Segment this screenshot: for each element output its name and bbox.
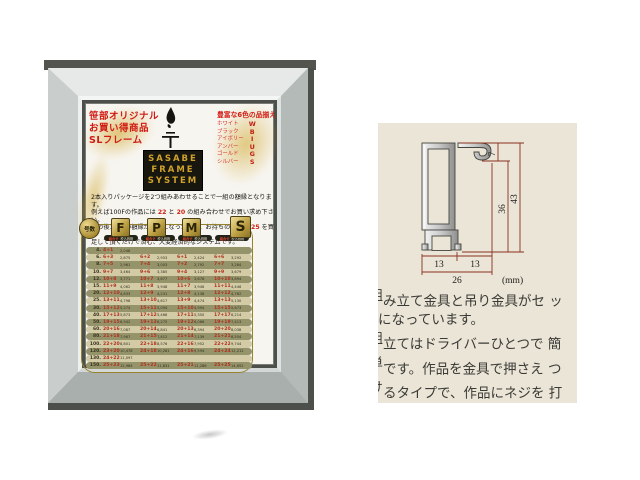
cell-price: 4,617 [157,299,167,303]
cell-combo: 24+18 [140,349,157,354]
table-cell: 21+187,967 [103,334,140,339]
cell-combo: 13+11 [103,298,120,303]
cell-price: 6,275 [157,320,167,324]
cell-price: 3,292 [231,256,241,260]
cell-combo: 9+4 [177,270,194,275]
color-name: ホワイト [217,121,244,129]
table-cell: 15+125,274 [103,306,140,311]
cell-price: 3,946 [194,285,204,289]
cell-combo: 10+7 [140,277,157,282]
cell-price: 11,831 [157,364,170,368]
cell-price: 5,673 [231,306,241,310]
table-cell: 15+155,673 [214,306,251,311]
dim-43: 43 [510,194,520,204]
row-size: 100. [86,342,103,347]
table-cell: 12+84,138 [177,291,214,296]
table-row: 10.9+73,4649+63,3859+43,1279+93,679 [86,269,252,276]
description-line-text: るタイプで、作品にネジを 打 [383,386,562,402]
table-cell: 11+83,948 [140,284,177,289]
dim-unit: (mm) [502,275,523,286]
color-code: S [249,159,256,167]
cell-price: 8,576 [157,342,167,346]
profile-cross-section-diagram: 7 36 43 13 13 26 (mm) [378,123,577,289]
cell-combo: 20+14 [140,327,157,332]
table-row: 150.25+2312,98425+2211,83125+2111,28625+… [86,362,252,369]
table-cell: 11+73,946 [177,284,214,289]
table-cell: 19+126,066 [177,320,214,325]
cell-price: 4,798 [120,299,130,303]
aluminum-frame: 笹部オリジナルお買い得商品SLフレーム SASABE FRAME SYSTEM … [48,68,308,403]
table-cell: 7+43,003 [140,262,177,267]
table-cell: 17+176,214 [214,313,251,318]
cell-price: 4,994 [194,306,204,310]
table-cell: 15+115,094 [140,306,177,311]
cell-price: 10,281 [157,349,170,353]
intro-segment: 20 [177,209,186,216]
cell-combo: 22+20 [103,342,120,347]
cell-price: 2,424 [194,256,204,260]
cell-combo: 21+15 [140,334,157,339]
description-line: 組立てはドライバーひとつで 簡 [378,330,577,354]
table-cell: 7+73,284 [214,262,251,267]
cell-combo: 20+13 [177,327,194,332]
fpms-box-f: F [111,218,130,237]
cell-price: 2,875 [120,256,130,260]
table-cell: 13+94,474 [177,298,214,303]
table-cell: 10+83,771 [103,277,140,282]
frame-shadow [192,428,229,442]
table-cell: 15+104,994 [177,306,214,311]
cell-price: 6,394 [194,328,204,332]
cell-combo: 7+7 [214,262,231,267]
color-name: ゴールド [217,151,244,159]
cell-combo: 24+22 [103,356,120,361]
cell-combo: 15+12 [103,306,120,311]
intro-segment: と [166,209,176,216]
cell-combo: 12+12 [214,291,231,296]
cell-combo: 20+16 [103,327,120,332]
cell-price: 7,967 [120,335,130,339]
table-cell: 13+135,130 [214,298,251,303]
table-cell: 7+52,961 [103,262,140,267]
color-lineup: 豊富な6色の品揃え ホワイトブラックアイボリーアンバーゴールドシルバー WBIU… [217,109,281,167]
cell-price: 2,953 [157,256,167,260]
cell-combo: 12+8 [177,291,194,296]
dim-13-left: 13 [434,260,444,270]
cell-combo: 11+8 [140,284,157,289]
cell-combo: 22+22 [214,342,231,347]
table-cell: 24+2211,097 [103,356,140,361]
cell-price: 4,633 [120,292,130,296]
table-cell: 20+136,394 [177,327,214,332]
cell-price: 5,873 [120,313,130,317]
table-row: 40.17+135,87317+125,46817+115,35017+176,… [86,312,252,319]
cell-price: 3,284 [231,263,241,267]
table-cell: 19+136,275 [140,320,177,325]
cell-price: 8,801 [120,342,130,346]
cell-price: 8,554 [231,335,241,339]
cell-combo: 25+23 [103,363,120,368]
cell-combo: 12+10 [103,291,120,296]
cell-combo: 9+6 [140,270,157,275]
cell-combo: 12+9 [140,291,157,296]
cell-combo: 10+8 [103,277,120,282]
cell-price: 6,214 [231,313,241,317]
cell-price: 3,948 [157,285,167,289]
cell-price: 3,127 [194,270,204,274]
description-line: けるタイプで、作品にネジを 打 [378,379,577,403]
row-size: 50. [86,320,103,325]
row-size: 60. [86,327,103,332]
color-name: シルバー [217,159,244,167]
table-cell: 12+104,633 [103,291,140,296]
cell-price: 11,286 [194,364,207,368]
framed-poster-photo: 笹部オリジナルお買い得商品SLフレーム SASABE FRAME SYSTEM … [46,60,314,410]
cell-combo: 7+2 [177,262,194,267]
description-line: 組み立て金具と吊り金具がセ ッ [378,287,577,311]
promo-line: SLフレーム [89,135,159,147]
cell-combo: 13+10 [140,298,157,303]
cell-price: 4,062 [120,285,130,289]
table-row: 6.6+32,8756+22,9536+12,4246+63,292 [86,254,252,261]
table-cell: 22+167,952 [177,342,214,347]
table-cell: 20+146,841 [140,327,177,332]
cell-combo: 6+2 [140,255,157,260]
cell-price: 9,594 [194,349,204,353]
description-line-text: 立てはドライバーひとつで 簡 [383,337,561,353]
table-cell: 11+94,062 [103,284,140,289]
row-size: 8. [86,262,103,267]
row-size: 10. [86,270,103,275]
intro-segment: 25 [251,224,260,231]
table-cell: 22+208,801 [103,342,140,347]
table-cell: 6+63,292 [214,255,251,260]
cell-combo: 24+24 [214,349,231,354]
cell-combo: 25+25 [214,363,231,368]
table-cell: 21+147,139 [177,334,214,339]
row-size: 80. [86,334,103,339]
cell-combo: 15+11 [140,306,157,311]
price-table: 4.4+12,0486.6+32,8756+22,9536+12,4246+63… [86,247,252,369]
fpms-box-s: S [230,216,251,238]
dim-13-right: 13 [470,260,480,270]
cell-price: 5,350 [194,313,204,317]
cell-combo: 21+18 [103,334,120,339]
cell-combo: 22+16 [177,342,194,347]
cell-combo: 7+5 [103,262,120,267]
intro-line: 2本入りパッケージを2つ組みあわせることで一組の額縁となります。 [91,194,279,209]
table-row: 12.10+83,77110+73,67710+63,67810+103,894 [86,276,252,283]
cell-combo: 21+14 [177,334,194,339]
table-cell: 9+43,127 [177,270,214,275]
table-cell: 17+135,873 [103,313,140,318]
row-size: 20. [86,291,103,296]
cell-combo: 19+19 [214,320,231,325]
promo-line: お買い得商品 [89,123,159,135]
cell-price: 4,138 [194,292,204,296]
table-cell: 12+124,762 [214,291,251,296]
fpms-box-m: M [182,218,201,237]
table-cell: 25+2111,286 [177,363,214,368]
dim-26: 26 [452,276,462,286]
cell-combo: 10+6 [177,277,194,282]
cell-combo: 13+9 [177,298,194,303]
color-name-list: ホワイトブラックアイボリーアンバーゴールドシルバー [217,121,244,167]
table-cell: 22+188,576 [140,342,177,347]
row-size: 30. [86,306,103,311]
table-cell: 12+94,231 [140,291,177,296]
table-cell: 25+2312,984 [103,363,140,368]
cell-price: 5,094 [157,306,167,310]
brand-line: SYSTEM [144,176,202,187]
colors-header: 豊富な6色の品揃え [217,109,281,119]
cell-price: 5,468 [157,313,167,317]
table-cell: 24+1810,281 [140,349,177,354]
cell-price: 3,385 [157,270,167,274]
table-cell: 20+167,087 [103,327,140,332]
intro-segment: 例えば100Fの作品には [91,209,158,216]
cell-price: 2,048 [120,249,130,253]
cell-price: 7,412 [157,335,167,339]
cell-price: 3,678 [194,277,204,281]
fpms-box-p: P [147,218,166,237]
cell-combo: 4+1 [103,248,120,253]
cell-price: 6,942 [120,320,130,324]
brand-line: FRAME [144,165,202,176]
table-cell: 21+157,412 [140,334,177,339]
table-cell: 6+12,424 [177,255,214,260]
cell-price: 10,478 [120,349,133,353]
cell-combo: 6+6 [214,255,231,260]
cell-combo: 19+15 [103,320,120,325]
brand-box: SASABE FRAME SYSTEM [143,150,203,191]
cell-price: 12,212 [231,349,244,353]
cell-price: 8,038 [231,328,241,332]
cell-price: 11,097 [120,356,133,360]
cell-price: 9,744 [231,342,241,346]
description-text: 組み立て金具と吊り金具がセ ッになっています。組立てはドライバーひとつで 簡単で… [378,287,577,403]
table-cell: 9+63,385 [140,270,177,275]
cell-combo: 25+22 [140,363,157,368]
frame-profile-shape [422,143,491,251]
cell-combo: 23+20 [103,349,120,354]
cell-price: 3,771 [120,277,130,281]
table-row: 80.21+187,96721+157,41221+147,13921+218,… [86,333,252,340]
cell-combo: 20+20 [214,327,231,332]
cell-combo: 17+13 [103,313,120,318]
cell-combo: 11+7 [177,284,194,289]
torch-logo-icon [158,106,184,150]
table-cell: 10+73,677 [140,277,177,282]
promo-text: 笹部オリジナルお買い得商品SLフレーム [89,111,159,147]
dim-7: 7 [488,151,498,156]
table-cell: 22+229,744 [214,342,251,347]
table-cell: 6+22,953 [140,255,177,260]
cell-price: 12,984 [120,364,133,368]
description-line-text: になっています。 [378,312,484,328]
row-size: 150. [86,363,103,368]
cell-combo: 11+9 [103,284,120,289]
description-line: 単です。作品を金具で押さえ つ [378,355,577,379]
cell-combo: 24+16 [177,349,194,354]
dim-36: 36 [498,204,508,214]
table-cell: 24+169,594 [177,349,214,354]
cell-combo: 13+13 [214,298,231,303]
table-row: 120.23+2010,47824+1810,28124+169,59424+2… [86,348,252,355]
color-name: アイボリー [217,136,244,144]
cell-price: 5,130 [231,299,241,303]
cell-combo: 6+3 [103,255,120,260]
cell-combo: 11+11 [214,284,231,289]
cell-price: 3,677 [157,277,167,281]
cell-combo: 19+12 [177,320,194,325]
table-cell: 17+125,468 [140,313,177,318]
cell-price: 3,894 [231,277,241,281]
column-header-combo-label: 組合せ [220,236,230,241]
intro-segment: 2本入りパッケージを2つ組みあわせることで一組の額縁となります。 [91,194,272,209]
cell-combo: 22+18 [140,342,157,347]
cell-price: 3,464 [120,270,130,274]
cell-combo: 7+4 [140,262,157,267]
table-cell: 24+2412,212 [214,349,251,354]
table-row: 30.15+125,27415+115,09415+104,99415+155,… [86,305,252,312]
row-size: 40. [86,313,103,318]
table-cell: 25+2211,831 [140,363,177,368]
table-cell: 11+114,446 [214,284,251,289]
row-size: 25. [86,298,103,303]
table-cell: 10+103,894 [214,277,251,282]
cell-combo: 25+21 [177,363,194,368]
cell-combo: 17+12 [140,313,157,318]
table-cell: 6+32,875 [103,255,140,260]
cell-price: 2,792 [194,263,204,267]
cell-price: 2,961 [120,263,130,267]
cell-price: 4,231 [157,292,167,296]
row-size: 6. [86,255,103,260]
table-row: 100.22+208,80122+188,57622+167,95222+229… [86,340,252,347]
color-code-list: WBIUGS [249,121,256,167]
row-size: 4. [86,248,103,253]
table-row: 60.20+167,08720+146,84120+136,39420+208,… [86,326,252,333]
table-cell: 13+114,798 [103,298,140,303]
cell-price: 7,952 [194,342,204,346]
cell-combo: 17+11 [177,313,194,318]
table-cell: 19+197,413 [214,320,251,325]
cell-combo: 10+10 [214,277,231,282]
cell-combo: 17+17 [214,313,231,318]
table-cell: 20+208,038 [214,327,251,332]
cell-combo: 9+9 [214,270,231,275]
row-size: 120. [86,349,103,354]
cell-price: 3,003 [157,263,167,267]
cell-price: 6,066 [194,320,204,324]
cell-price: 7,413 [231,320,241,324]
cell-price: 4,474 [194,299,204,303]
cell-price: 5,274 [120,306,130,310]
cell-price: 14,652 [231,364,244,368]
cell-price: 7,139 [194,335,204,339]
cell-combo: 15+10 [177,306,194,311]
cell-price: 4,762 [231,292,241,296]
description-line-text: み立て金具と吊り金具がセ ッ [383,294,563,310]
row-size: 12. [86,277,103,282]
cell-price: 4,446 [231,285,241,289]
row-size: 15. [86,284,103,289]
table-cell: 4+12,048 [103,248,140,253]
table-row: 4.4+12,048 [86,247,252,254]
table-row: 25.13+114,79813+104,61713+94,47413+135,1… [86,297,252,304]
poster: 笹部オリジナルお買い得商品SLフレーム SASABE FRAME SYSTEM … [86,104,273,364]
table-cell: 10+63,678 [177,277,214,282]
table-cell: 13+104,617 [140,298,177,303]
table-row: 20.12+104,63312+94,23112+84,13812+124,76… [86,290,252,297]
cell-combo: 6+1 [177,255,194,260]
cell-price: 7,087 [120,328,130,332]
table-cell: 9+73,464 [103,270,140,275]
spec-panel: 7 36 43 13 13 26 (mm) 組み立て金具と吊り金具がセ ッになっ… [378,123,577,403]
row-size: 130. [86,356,103,361]
description-line-text: です。作品を金具で押さえ つ [383,361,561,377]
table-cell: 7+22,792 [177,262,214,267]
cell-price: 6,841 [157,328,167,332]
promo-line: 笹部オリジナル [89,111,159,123]
table-cell: 17+115,350 [177,313,214,318]
table-row: 8.7+52,9617+43,0037+22,7927+73,284 [86,261,252,268]
table-cell: 25+2514,652 [214,363,251,368]
table-cell: 21+218,554 [214,334,251,339]
cell-combo: 15+15 [214,306,231,311]
table-row: 15.11+94,06211+83,94811+73,94611+114,446 [86,283,252,290]
table-cell: 9+93,679 [214,270,251,275]
cell-price: 3,679 [231,270,241,274]
description-line: になっています。 [378,311,577,330]
brand-line: SASABE [144,154,202,165]
table-cell: 23+2010,478 [103,349,140,354]
cell-combo: 19+13 [140,320,157,325]
table-row: 130.24+2211,097 [86,355,252,362]
table-row: 50.19+156,94219+136,27519+126,06619+197,… [86,319,252,326]
table-cell: 19+156,942 [103,320,140,325]
cell-combo: 9+7 [103,270,120,275]
cell-combo: 21+21 [214,334,231,339]
size-circle: 号数 [79,218,100,239]
frame-inner-lip: 笹部オリジナルお買い得商品SLフレーム SASABE FRAME SYSTEM … [78,96,281,372]
